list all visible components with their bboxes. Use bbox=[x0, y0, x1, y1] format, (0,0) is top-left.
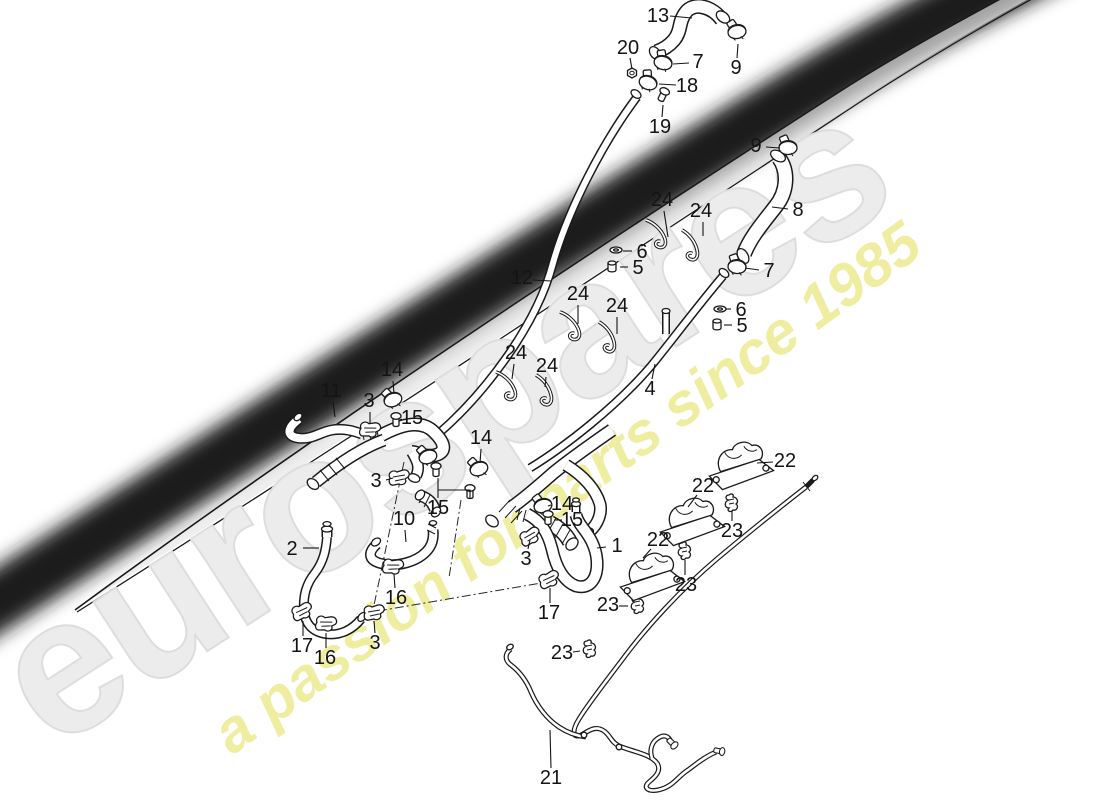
callout-label-17: 17 bbox=[538, 602, 560, 624]
callout-label-23: 23 bbox=[551, 642, 573, 664]
callout-leader-9 bbox=[737, 44, 738, 58]
callout-label-3: 3 bbox=[369, 632, 380, 654]
callout-label-3: 3 bbox=[520, 548, 531, 570]
plug-5b bbox=[713, 319, 721, 330]
callout-label-22: 22 bbox=[692, 475, 714, 497]
callout-leader-23 bbox=[573, 651, 580, 652]
callout-label-19: 19 bbox=[649, 116, 671, 138]
callout-label-11: 11 bbox=[321, 380, 342, 402]
callout-label-7: 7 bbox=[692, 51, 703, 73]
clip-23b bbox=[678, 542, 690, 560]
bolt-15b bbox=[431, 463, 441, 477]
callout-label-15: 15 bbox=[427, 497, 449, 519]
bracket-22a bbox=[704, 437, 775, 492]
washer-6a bbox=[610, 247, 622, 253]
callout-label-5: 5 bbox=[632, 257, 643, 279]
callout-leader-18 bbox=[659, 84, 676, 85]
callout-label-24: 24 bbox=[606, 295, 628, 317]
callout-label-16: 16 bbox=[385, 587, 407, 609]
callout-label-24: 24 bbox=[505, 342, 527, 364]
callout-label-22: 22 bbox=[774, 450, 796, 472]
callout-label-3: 3 bbox=[363, 390, 374, 412]
callout-label-20: 20 bbox=[617, 37, 639, 59]
callout-label-9: 9 bbox=[730, 57, 741, 79]
callout-leader-7 bbox=[673, 63, 689, 64]
callout-label-24: 24 bbox=[651, 189, 673, 211]
callout-label-15: 15 bbox=[401, 407, 423, 429]
callout-label-14: 14 bbox=[381, 359, 403, 381]
callout-label-5: 5 bbox=[736, 315, 747, 337]
callout-label-18: 18 bbox=[676, 75, 698, 97]
bolt-15a bbox=[391, 413, 401, 427]
clip-23a bbox=[725, 494, 737, 512]
callout-label-24: 24 bbox=[567, 283, 589, 305]
callout-label-16: 16 bbox=[314, 647, 336, 669]
callout-label-13: 13 bbox=[647, 5, 669, 27]
callout-label-7: 7 bbox=[763, 260, 774, 282]
callout-label-23: 23 bbox=[721, 520, 743, 542]
callout-label-10: 10 bbox=[393, 508, 415, 530]
callout-label-2: 2 bbox=[286, 538, 297, 560]
callout-label-23: 23 bbox=[597, 594, 619, 616]
callout-label-14: 14 bbox=[470, 427, 492, 449]
plug-5a bbox=[608, 261, 616, 272]
callout-label-8: 8 bbox=[792, 199, 803, 221]
clamp-17b bbox=[538, 569, 561, 589]
callout-label-22: 22 bbox=[647, 529, 669, 551]
callout-leader-20 bbox=[630, 58, 632, 69]
callout-label-24: 24 bbox=[690, 200, 712, 222]
clip-23d bbox=[583, 640, 595, 658]
callout-label-17: 17 bbox=[291, 635, 313, 657]
callout-label-1: 1 bbox=[611, 535, 622, 557]
washer-6b bbox=[714, 306, 726, 312]
callout-label-9: 9 bbox=[750, 135, 761, 157]
callout-label-15: 15 bbox=[561, 509, 583, 531]
callout-label-24: 24 bbox=[536, 355, 558, 377]
callout-label-12: 12 bbox=[511, 267, 533, 289]
parts-diagram-canvas: eurospares a passion for parts since 198… bbox=[0, 0, 1100, 800]
parts-diagram-page: eurospares a passion for parts since 198… bbox=[0, 0, 1100, 800]
callout-label-21: 21 bbox=[540, 767, 562, 789]
clamp-18 bbox=[637, 67, 661, 93]
bolt-19 bbox=[656, 86, 671, 103]
nut-20 bbox=[628, 68, 637, 78]
callout-label-4: 4 bbox=[644, 378, 655, 400]
callout-label-23: 23 bbox=[675, 574, 697, 596]
callout-leader-21 bbox=[550, 730, 551, 768]
callout-label-3: 3 bbox=[370, 470, 381, 492]
